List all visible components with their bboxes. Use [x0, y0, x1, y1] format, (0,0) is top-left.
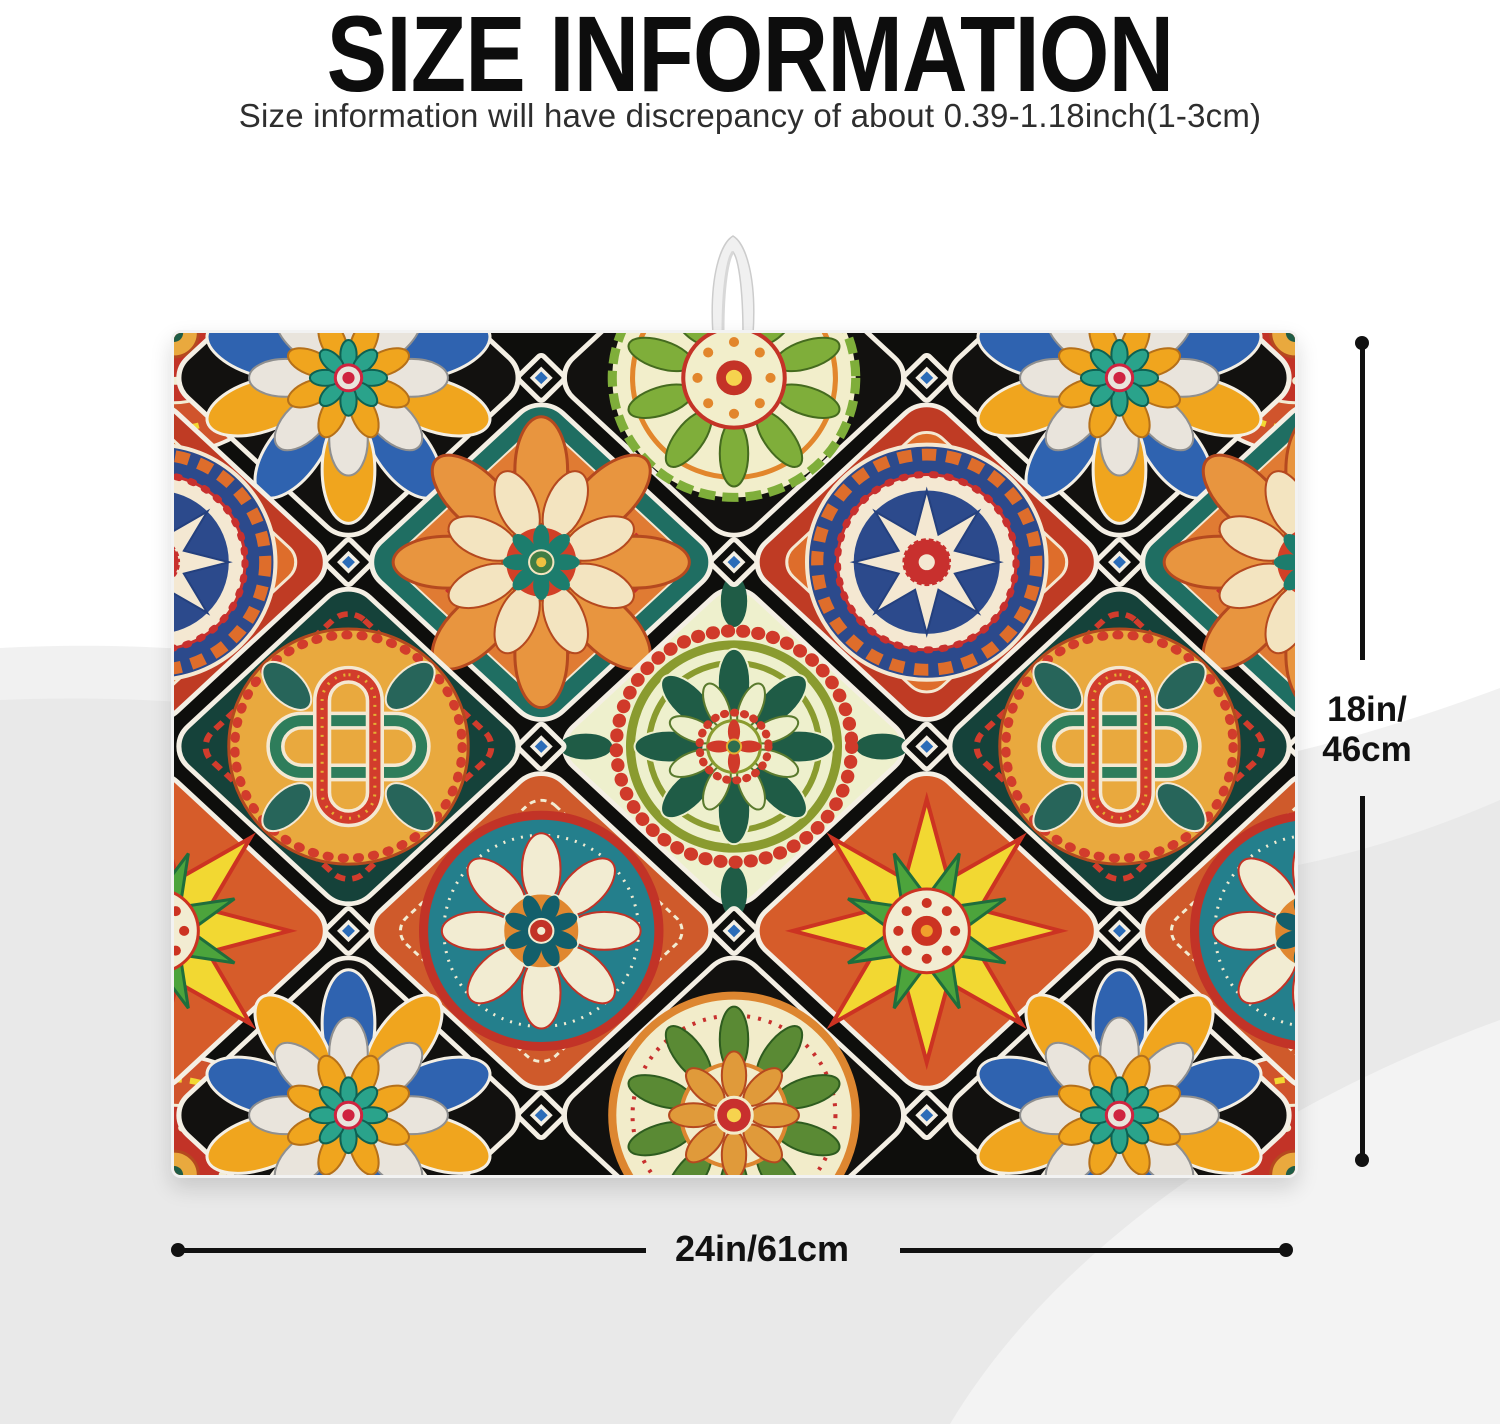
height-inches: 18in/ — [1294, 690, 1440, 730]
height-cm: 46cm — [1294, 730, 1440, 770]
size-information-page: SIZE INFORMATION Size information will h… — [0, 0, 1500, 1424]
height-dimension-label: 18in/ 46cm — [1294, 690, 1440, 770]
product-image-drying-mat — [171, 330, 1298, 1178]
width-line-right-segment — [900, 1248, 1282, 1253]
hanging-loop-icon — [701, 231, 765, 335]
height-line-bottom-dot — [1355, 1153, 1369, 1167]
mandala-pattern — [174, 333, 1295, 1175]
page-subtitle: Size information will have discrepancy o… — [0, 97, 1500, 135]
width-line-left-segment — [184, 1248, 646, 1253]
height-line-lower-segment — [1360, 796, 1365, 1158]
width-dimension-label: 24in/61cm — [652, 1229, 872, 1269]
height-line-upper-segment — [1360, 348, 1365, 660]
width-line-left-dot — [171, 1243, 185, 1257]
page-title: SIZE INFORMATION — [120, 0, 1380, 108]
width-line-right-dot — [1279, 1243, 1293, 1257]
